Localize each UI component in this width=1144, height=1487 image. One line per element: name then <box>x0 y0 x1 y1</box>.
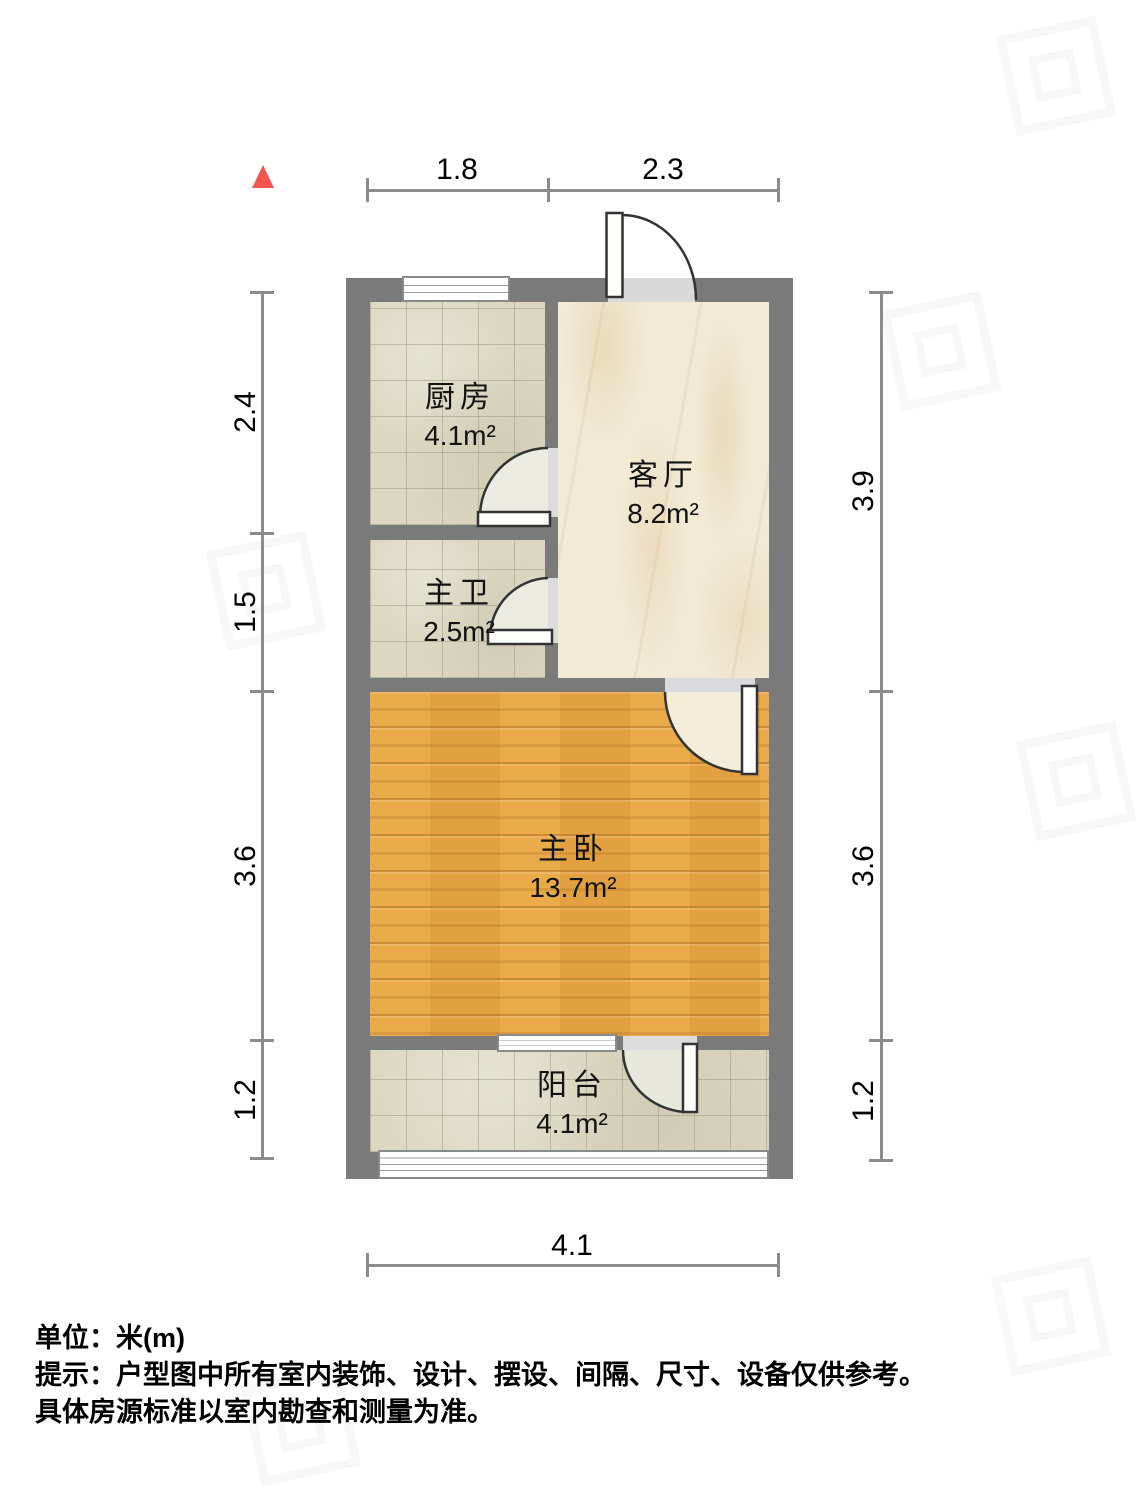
entry-door-arc <box>622 215 696 300</box>
room-name: 阳台 <box>536 1060 608 1104</box>
room-label-living: 客厅 8.2m² <box>627 450 699 530</box>
bath-door-leaf <box>488 630 552 644</box>
room-label-bathroom: 主卫 2.5m² <box>423 568 495 648</box>
room-area: 4.1m² <box>424 420 496 452</box>
unit-note: 单位：米(m) <box>35 1316 185 1355</box>
floor-plan: 1.8 2.3 4.1 2.4 1.5 3.6 1.2 3.9 3.6 1.2 <box>0 0 1144 1454</box>
room-label-bedroom: 主卧 13.7m² <box>529 824 616 904</box>
door-symbols <box>0 0 1144 1454</box>
room-name: 主卧 <box>529 824 616 868</box>
room-label-kitchen: 厨房 4.1m² <box>424 372 496 452</box>
balcony-door-leaf <box>683 1044 697 1112</box>
room-name: 厨房 <box>424 372 496 416</box>
room-name: 主卫 <box>423 568 495 612</box>
room-area: 13.7m² <box>529 872 616 904</box>
room-name: 客厅 <box>627 450 699 494</box>
notice-line2: 具体房源标准以室内勘查和测量为准。 <box>35 1390 494 1429</box>
room-area: 2.5m² <box>423 616 495 648</box>
room-area: 4.1m² <box>536 1108 608 1140</box>
room-label-balcony: 阳台 4.1m² <box>536 1060 608 1140</box>
entry-door-leaf <box>607 213 623 297</box>
notice-line1: 提示：户型图中所有室内装饰、设计、摆设、间隔、尺寸、设备仅供参考。 <box>35 1353 926 1392</box>
kitchen-door-leaf <box>478 512 550 526</box>
room-area: 8.2m² <box>627 498 699 530</box>
bedroom-door-leaf <box>742 686 757 774</box>
